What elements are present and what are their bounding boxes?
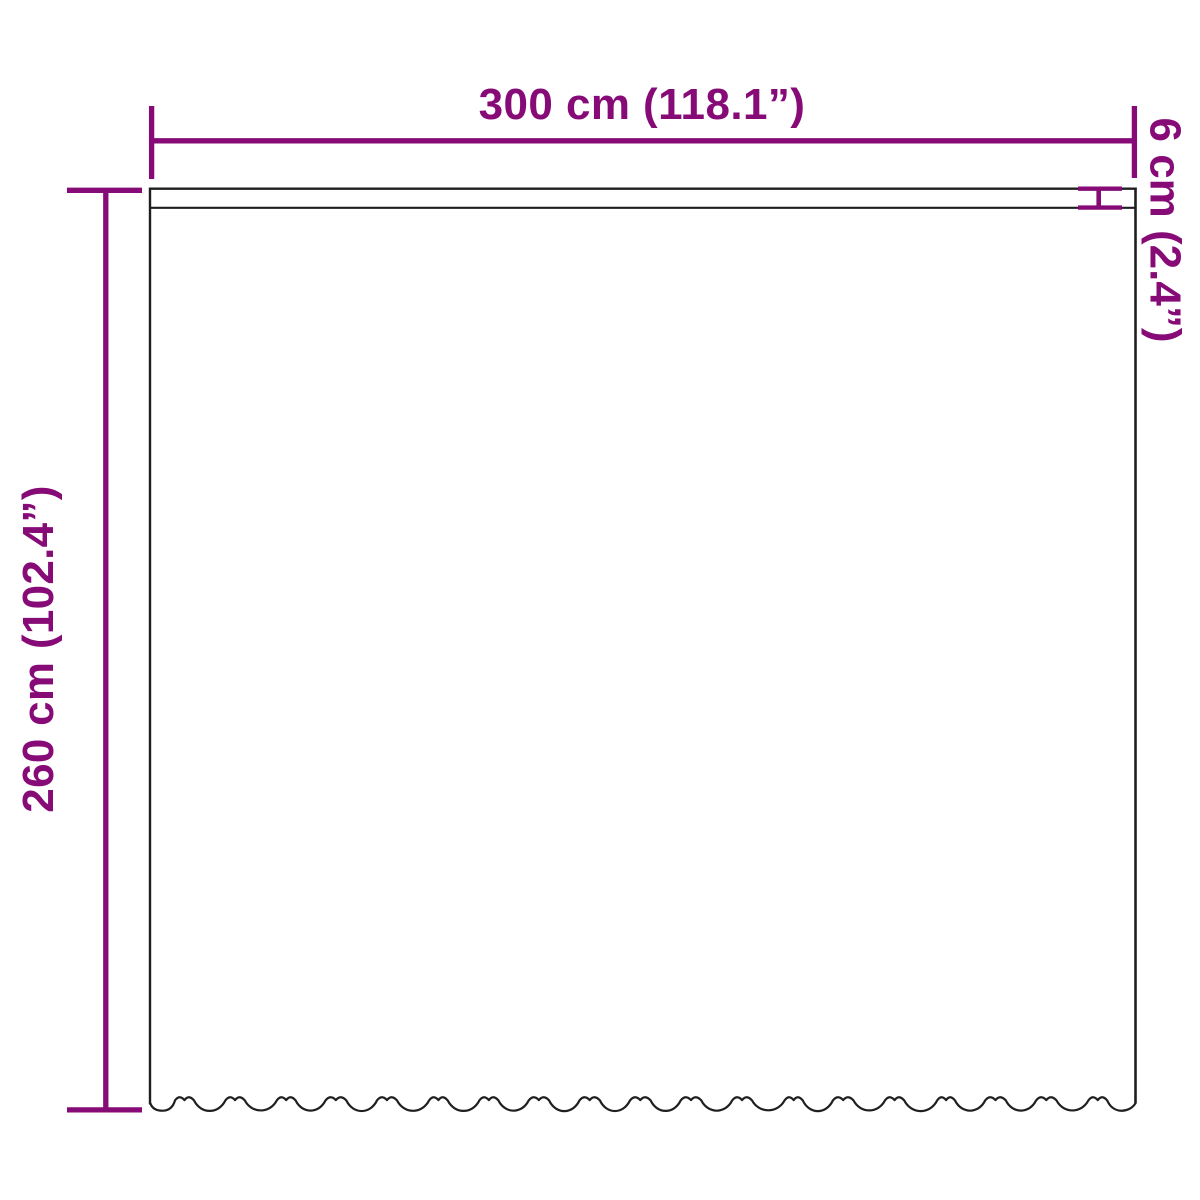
svg-text:6 cm (2.4”): 6 cm (2.4”) [1141,118,1190,343]
svg-text:300 cm (118.1”): 300 cm (118.1”) [479,80,806,129]
svg-text:260 cm (102.4”): 260 cm (102.4”) [14,485,63,812]
